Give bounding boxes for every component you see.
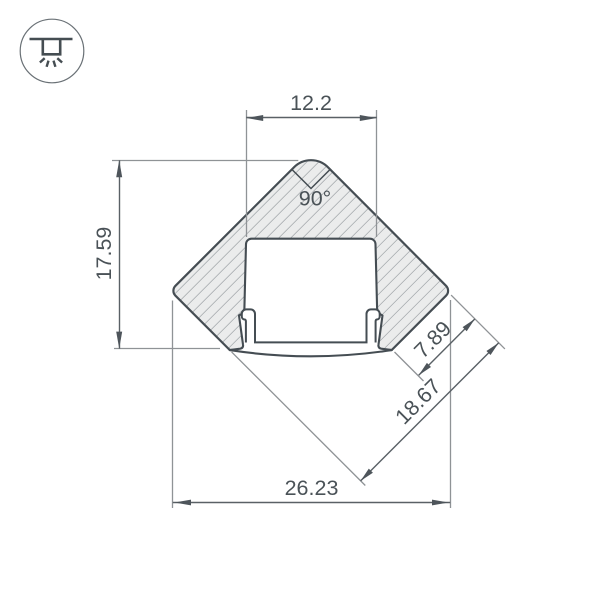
- svg-text:17.59: 17.59: [92, 227, 116, 281]
- svg-text:18.67: 18.67: [391, 374, 446, 429]
- svg-text:26.23: 26.23: [285, 476, 339, 500]
- svg-text:12.2: 12.2: [290, 91, 332, 115]
- svg-text:90°: 90°: [299, 187, 332, 211]
